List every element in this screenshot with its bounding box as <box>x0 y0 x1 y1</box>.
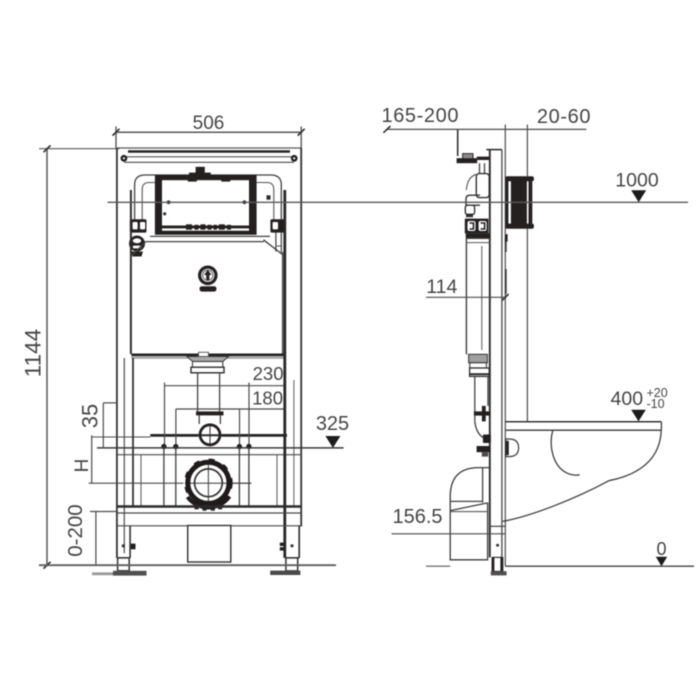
svg-text:H: H <box>72 459 93 473</box>
svg-text:20-60: 20-60 <box>537 106 591 128</box>
svg-text:325: 325 <box>316 413 349 435</box>
svg-text:1000: 1000 <box>615 170 659 192</box>
svg-text:-10: -10 <box>647 397 665 411</box>
svg-text:230: 230 <box>253 363 284 384</box>
svg-text:0: 0 <box>656 539 666 559</box>
svg-text:165-200: 165-200 <box>381 105 459 127</box>
svg-text:400: 400 <box>611 388 644 410</box>
svg-text:156.5: 156.5 <box>392 506 442 528</box>
svg-text:1144: 1144 <box>21 329 46 377</box>
svg-text:506: 506 <box>193 113 225 134</box>
svg-text:114: 114 <box>426 276 457 298</box>
svg-text:180: 180 <box>252 387 283 408</box>
svg-text:35: 35 <box>78 404 103 428</box>
svg-text:0-200: 0-200 <box>64 504 87 556</box>
